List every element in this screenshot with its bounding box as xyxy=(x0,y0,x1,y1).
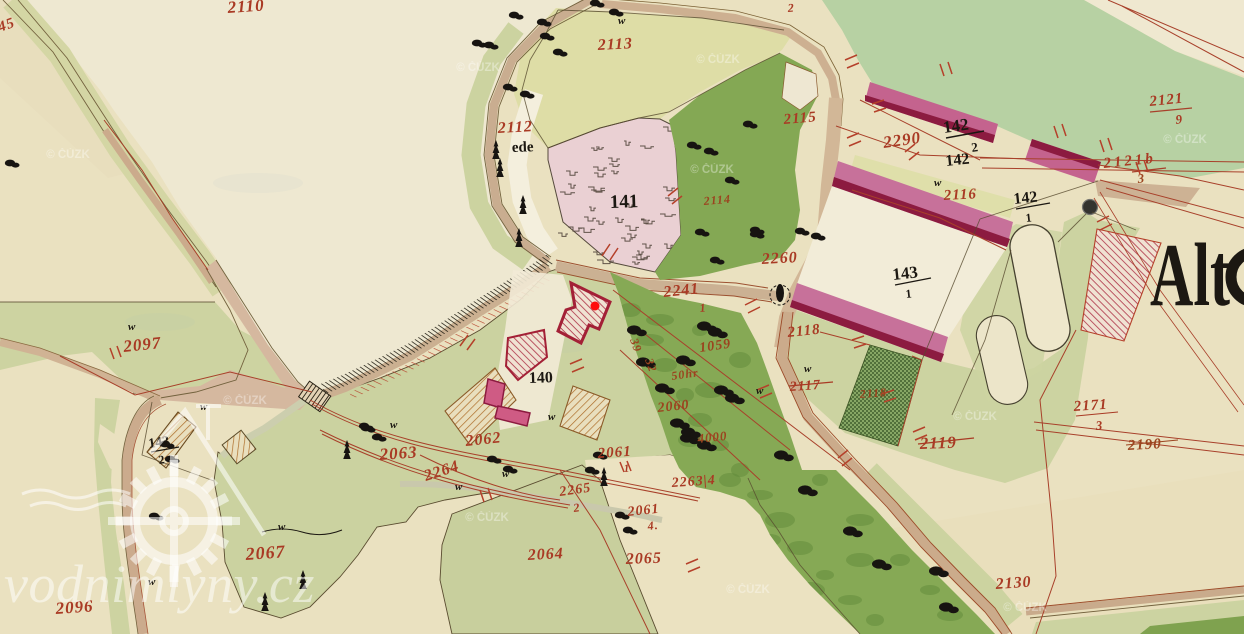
svg-text:vodnimlyny.cz: vodnimlyny.cz xyxy=(4,554,315,614)
svg-text:142: 142 xyxy=(942,115,970,137)
svg-text:3: 3 xyxy=(1094,418,1104,434)
svg-text:2114: 2114 xyxy=(702,192,731,208)
svg-text:© ČÚZK: © ČÚZK xyxy=(465,511,509,524)
svg-text:© ČÚZK: © ČÚZK xyxy=(223,394,267,407)
svg-text:© ČÚZK: © ČÚZK xyxy=(953,410,997,423)
svg-text:1: 1 xyxy=(623,463,630,475)
svg-text:2063: 2063 xyxy=(378,442,418,464)
svg-text:2118: 2118 xyxy=(858,385,887,401)
svg-text:w: w xyxy=(804,363,812,375)
svg-text:w: w xyxy=(128,321,136,333)
svg-text:2065: 2065 xyxy=(625,550,663,568)
svg-text:142: 142 xyxy=(1013,189,1039,208)
svg-text:© ČÚZK: © ČÚZK xyxy=(696,53,740,66)
svg-text:w: w xyxy=(502,468,510,480)
svg-text:2130: 2130 xyxy=(994,574,1032,594)
svg-text:w: w xyxy=(618,15,626,27)
svg-text:4.: 4. xyxy=(646,518,659,533)
svg-text:2: 2 xyxy=(786,1,795,16)
svg-text:2061: 2061 xyxy=(596,444,632,462)
svg-text:2113: 2113 xyxy=(596,35,633,54)
svg-text:2115: 2115 xyxy=(782,109,817,128)
svg-text:ede: ede xyxy=(512,139,535,156)
svg-text:© ČÚZK: © ČÚZK xyxy=(1003,601,1047,614)
svg-text:2171: 2171 xyxy=(1072,397,1108,415)
svg-text:w: w xyxy=(756,385,764,397)
svg-text:142: 142 xyxy=(945,151,971,170)
svg-text:w: w xyxy=(390,419,398,431)
svg-text:© ČÚZK: © ČÚZK xyxy=(1163,133,1207,146)
svg-text:w: w xyxy=(278,521,286,533)
svg-text:w: w xyxy=(455,481,463,493)
svg-text:© ČÚZK: © ČÚZK xyxy=(726,583,770,596)
svg-text:2117: 2117 xyxy=(788,378,821,395)
svg-text:2260: 2260 xyxy=(760,249,798,268)
svg-text:© ČÚZK: © ČÚZK xyxy=(456,61,500,74)
svg-text:2263|4: 2263|4 xyxy=(670,473,716,491)
svg-text:141: 141 xyxy=(609,191,638,213)
svg-text:2112: 2112 xyxy=(496,118,533,137)
svg-text:© ČÚZK: © ČÚZK xyxy=(690,163,734,176)
svg-text:Alt: Alt xyxy=(1150,226,1230,325)
svg-text:140: 140 xyxy=(529,369,554,387)
svg-text:3: 3 xyxy=(1136,170,1146,186)
svg-text:2110: 2110 xyxy=(226,0,265,17)
svg-text:2064: 2064 xyxy=(526,545,564,564)
svg-text:2190: 2190 xyxy=(1126,436,1162,454)
svg-text:2116: 2116 xyxy=(942,186,977,204)
svg-text:© ČÚZK: © ČÚZK xyxy=(46,148,90,161)
svg-text:w: w xyxy=(934,177,942,189)
svg-text:w: w xyxy=(548,411,556,423)
svg-text:9: 9 xyxy=(1175,111,1184,127)
svg-text:1: 1 xyxy=(699,300,707,315)
